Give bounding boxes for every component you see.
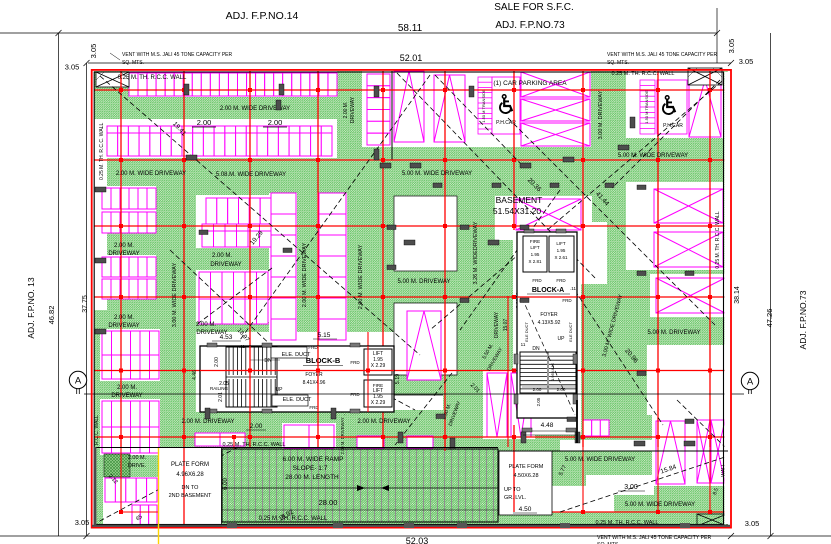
svg-text:2.00 M.: 2.00 M. bbox=[128, 455, 147, 461]
svg-text:.11: .11 bbox=[239, 344, 245, 349]
svg-text:DRIVEWAY: DRIVEWAY bbox=[108, 251, 139, 257]
svg-text:0.25 M. TH. R.C.C. WALL: 0.25 M. TH. R.C.C. WALL bbox=[99, 123, 105, 180]
svg-text:(1) CAR PARKING AREA: (1) CAR PARKING AREA bbox=[493, 80, 567, 87]
svg-text:4.96X6.28: 4.96X6.28 bbox=[176, 472, 204, 478]
svg-text:58.11: 58.11 bbox=[398, 23, 423, 34]
svg-text:4.53: 4.53 bbox=[220, 334, 233, 341]
svg-text:P.H.CAR: P.H.CAR bbox=[663, 123, 683, 129]
svg-text:2.00 M.: 2.00 M. bbox=[114, 315, 134, 321]
svg-text:A: A bbox=[75, 376, 82, 387]
svg-text:3.05: 3.05 bbox=[745, 519, 760, 528]
svg-text:BLOCK-A: BLOCK-A bbox=[532, 287, 564, 294]
svg-text:0.25 M. TH. R.C.C. WALL: 0.25 M. TH. R.C.C. WALL bbox=[118, 75, 187, 81]
svg-text:VENT WITH M.S. JALI 45 TONE CA: VENT WITH M.S. JALI 45 TONE CAPACITY PER bbox=[607, 52, 718, 58]
svg-text:2.00 M. WIDE DRIVEWAY: 2.00 M. WIDE DRIVEWAY bbox=[358, 244, 364, 309]
svg-text:2.00: 2.00 bbox=[533, 387, 542, 392]
svg-text:X 2.61: X 2.61 bbox=[554, 255, 568, 260]
svg-text:5.19: 5.19 bbox=[395, 374, 401, 385]
svg-text:2.00 M. DRIVEWAY: 2.00 M. DRIVEWAY bbox=[340, 417, 345, 454]
svg-text:5.00 M. DRIVEWAY: 5.00 M. DRIVEWAY bbox=[397, 279, 450, 285]
svg-text:2.00 M.: 2.00 M. bbox=[196, 322, 216, 328]
svg-text:8.41X4.96: 8.41X4.96 bbox=[303, 380, 326, 386]
svg-text:46.82: 46.82 bbox=[47, 306, 56, 325]
svg-text:FIRE: FIRE bbox=[530, 239, 540, 244]
svg-text:6.00 M. WIDE RAMP: 6.00 M. WIDE RAMP bbox=[282, 456, 343, 463]
svg-text:2.00 M. WIDE DRIVEWAY: 2.00 M. WIDE DRIVEWAY bbox=[116, 171, 186, 177]
svg-text:SLOPE- 1:7: SLOPE- 1:7 bbox=[293, 465, 328, 472]
svg-text:ELE. DUCT: ELE. DUCT bbox=[283, 397, 312, 403]
svg-text:5.00 M. WIDE DRIVEWAY: 5.00 M. WIDE DRIVEWAY bbox=[565, 457, 635, 463]
svg-text:3.26 M. WIDEDRIVEWAY: 3.26 M. WIDEDRIVEWAY bbox=[473, 221, 479, 284]
svg-text:3.00 M. DRIVEWAY: 3.00 M. DRIVEWAY bbox=[598, 90, 604, 139]
svg-text:3.05: 3.05 bbox=[89, 44, 98, 59]
svg-text:FRD: FRD bbox=[556, 278, 566, 283]
svg-text:3.05: 3.05 bbox=[727, 39, 736, 54]
svg-text:.11: .11 bbox=[570, 286, 576, 291]
svg-text:1.95: 1.95 bbox=[557, 248, 566, 253]
svg-text:3.00 M. WIDE DRIVEWAY: 3.00 M. WIDE DRIVEWAY bbox=[172, 262, 178, 327]
svg-text:2.05: 2.05 bbox=[536, 397, 541, 406]
svg-text:VENT WITH M.S. JALI 45 TONE CA: VENT WITH M.S. JALI 45 TONE CAPACITY PER bbox=[122, 52, 233, 58]
svg-text:X 2.29: X 2.29 bbox=[371, 363, 386, 369]
svg-text:PLATE FORM: PLATE FORM bbox=[509, 464, 544, 470]
svg-text:ELE DUCT: ELE DUCT bbox=[568, 322, 573, 342]
svg-text:ADJ. F.P.NO.14: ADJ. F.P.NO.14 bbox=[226, 10, 299, 22]
svg-text:VENT WITH M.S. JALI 45 TONE CA: VENT WITH M.S. JALI 45 TONE CAPACITY PER bbox=[597, 535, 712, 541]
svg-text:5.00 M. WIDE DRIVEWAY: 5.00 M. WIDE DRIVEWAY bbox=[402, 171, 472, 177]
svg-text:2.01: 2.01 bbox=[218, 392, 224, 402]
svg-text:3.05: 3.05 bbox=[739, 57, 754, 66]
svg-text:11: 11 bbox=[521, 342, 526, 347]
svg-text:28.00 M. LENGTH: 28.00 M. LENGTH bbox=[285, 474, 339, 481]
svg-text:1.95: 1.95 bbox=[531, 252, 540, 257]
svg-text:X 2.29: X 2.29 bbox=[371, 400, 386, 406]
svg-text:4.50X6.28: 4.50X6.28 bbox=[513, 473, 538, 479]
svg-text:4.50: 4.50 bbox=[519, 506, 532, 513]
svg-text:2.00 M.: 2.00 M. bbox=[117, 385, 137, 391]
svg-text:4.13X5.92: 4.13X5.92 bbox=[538, 320, 561, 326]
svg-text:BLOCK-B: BLOCK-B bbox=[306, 356, 341, 365]
svg-text:BASEMENT: BASEMENT bbox=[496, 195, 543, 205]
svg-text:2.00: 2.00 bbox=[557, 387, 566, 392]
svg-text:15.07: 15.07 bbox=[503, 319, 509, 332]
svg-text:DN: DN bbox=[532, 346, 540, 352]
svg-text:2.00 M.: 2.00 M. bbox=[212, 253, 232, 259]
svg-text:GR. LVL.: GR. LVL. bbox=[504, 495, 527, 501]
svg-text:4.48: 4.48 bbox=[541, 422, 554, 429]
svg-text:A: A bbox=[747, 377, 754, 388]
svg-text:3.00: 3.00 bbox=[624, 484, 638, 491]
svg-text:38.14: 38.14 bbox=[734, 286, 741, 304]
svg-text:2.05: 2.05 bbox=[219, 381, 229, 387]
svg-text:UP: UP bbox=[276, 387, 284, 393]
svg-text:FRD: FRD bbox=[308, 345, 318, 350]
svg-text:ADJ. F.P.NO. 13: ADJ. F.P.NO. 13 bbox=[26, 277, 36, 339]
svg-text:51.54X31.20: 51.54X31.20 bbox=[493, 206, 541, 216]
svg-text:47.26: 47.26 bbox=[765, 309, 774, 328]
svg-text:UP: UP bbox=[558, 336, 566, 342]
svg-text:SALE FOR S.F.C.: SALE FOR S.F.C. bbox=[494, 2, 573, 13]
svg-text:2.00 M. WIDE DRIVEWAY: 2.00 M. WIDE DRIVEWAY bbox=[302, 242, 308, 307]
svg-text:X 2.81: X 2.81 bbox=[528, 259, 542, 264]
svg-text:FRD: FRD bbox=[350, 360, 360, 365]
svg-text:R.C.C. WALL: R.C.C. WALL bbox=[94, 415, 100, 445]
svg-text:5.08.M. WIDE DRIVEWAY: 5.08.M. WIDE DRIVEWAY bbox=[216, 172, 286, 178]
svg-text:DRIVE.: DRIVE. bbox=[128, 463, 147, 469]
svg-text:SQ. MTS.: SQ. MTS. bbox=[607, 60, 629, 66]
svg-text:5.00 M. WIDE DRIVEWAY: 5.00 M. WIDE DRIVEWAY bbox=[618, 153, 688, 159]
svg-text:LIFT: LIFT bbox=[530, 245, 540, 250]
svg-text:3.05: 3.05 bbox=[75, 518, 90, 527]
svg-text:2.00 M.: 2.00 M. bbox=[114, 243, 134, 249]
svg-text:52.03: 52.03 bbox=[406, 536, 429, 544]
svg-text:FOYER: FOYER bbox=[305, 372, 323, 378]
svg-text:37.75: 37.75 bbox=[82, 295, 89, 313]
svg-text:2.00: 2.00 bbox=[214, 357, 220, 367]
svg-text:DRIVEWAY: DRIVEWAY bbox=[210, 262, 241, 268]
svg-text:2.00 M. DRIVEWAY: 2.00 M. DRIVEWAY bbox=[357, 419, 410, 425]
svg-text:5.00 M. WIDE DRIVEWAY: 5.00 M. WIDE DRIVEWAY bbox=[625, 502, 695, 508]
svg-text:2.00 M. DRIVEWAY: 2.00 M. DRIVEWAY bbox=[181, 419, 234, 425]
svg-text:PLATE FORM: PLATE FORM bbox=[171, 462, 209, 468]
svg-text:28.00: 28.00 bbox=[319, 498, 338, 507]
svg-text:ADJ. F.P.NO.73: ADJ. F.P.NO.73 bbox=[798, 290, 808, 349]
svg-text:0.25 M. TH. R.C.C. WALL: 0.25 M. TH. R.C.C. WALL bbox=[715, 211, 721, 268]
svg-text:0.25 M. TH. R.C.C. WALL: 0.25 M. TH. R.C.C. WALL bbox=[259, 516, 328, 522]
svg-text:2ND BASEMENT: 2ND BASEMENT bbox=[169, 493, 212, 499]
svg-text:2.00: 2.00 bbox=[268, 118, 283, 127]
svg-text:P.H.CAR: P.H.CAR bbox=[496, 120, 516, 126]
svg-text:4.46: 4.46 bbox=[192, 370, 198, 380]
svg-text:SQ. MTS.: SQ. MTS. bbox=[122, 60, 144, 66]
svg-text:UP TO: UP TO bbox=[504, 487, 521, 493]
svg-text:FOYER: FOYER bbox=[540, 312, 558, 318]
svg-text:ADJ. F.P.NO.73: ADJ. F.P.NO.73 bbox=[495, 20, 565, 31]
svg-text:52.01: 52.01 bbox=[400, 53, 423, 63]
svg-text:2.00: 2.00 bbox=[197, 118, 212, 127]
svg-text:DRIVEWAY: DRIVEWAY bbox=[494, 311, 500, 338]
svg-text:5.15: 5.15 bbox=[318, 332, 331, 339]
svg-text:1.50 M TRANSIDE: 1.50 M TRANSIDE bbox=[644, 90, 649, 124]
svg-text:DN: DN bbox=[264, 358, 272, 364]
svg-text:FRD: FRD bbox=[532, 278, 542, 283]
svg-text:FRD: FRD bbox=[350, 392, 360, 397]
svg-text:2.00 M.: 2.00 M. bbox=[343, 102, 349, 119]
svg-text:3.05: 3.05 bbox=[65, 63, 80, 72]
svg-text:DRIVEWAY: DRIVEWAY bbox=[108, 323, 139, 329]
svg-text:5.00 M. DRIVEWAY: 5.00 M. DRIVEWAY bbox=[647, 330, 700, 336]
svg-text:DRIVEWAY: DRIVEWAY bbox=[350, 96, 356, 123]
svg-text:LIFT: LIFT bbox=[556, 241, 566, 246]
svg-text:1.50 M TRANSIDE: 1.50 M TRANSIDE bbox=[481, 89, 486, 123]
svg-text:2.00: 2.00 bbox=[250, 423, 263, 430]
svg-text:DN TO: DN TO bbox=[182, 485, 200, 491]
svg-text:FRD: FRD bbox=[562, 298, 572, 303]
svg-text:ELE DUCT: ELE DUCT bbox=[524, 322, 529, 342]
